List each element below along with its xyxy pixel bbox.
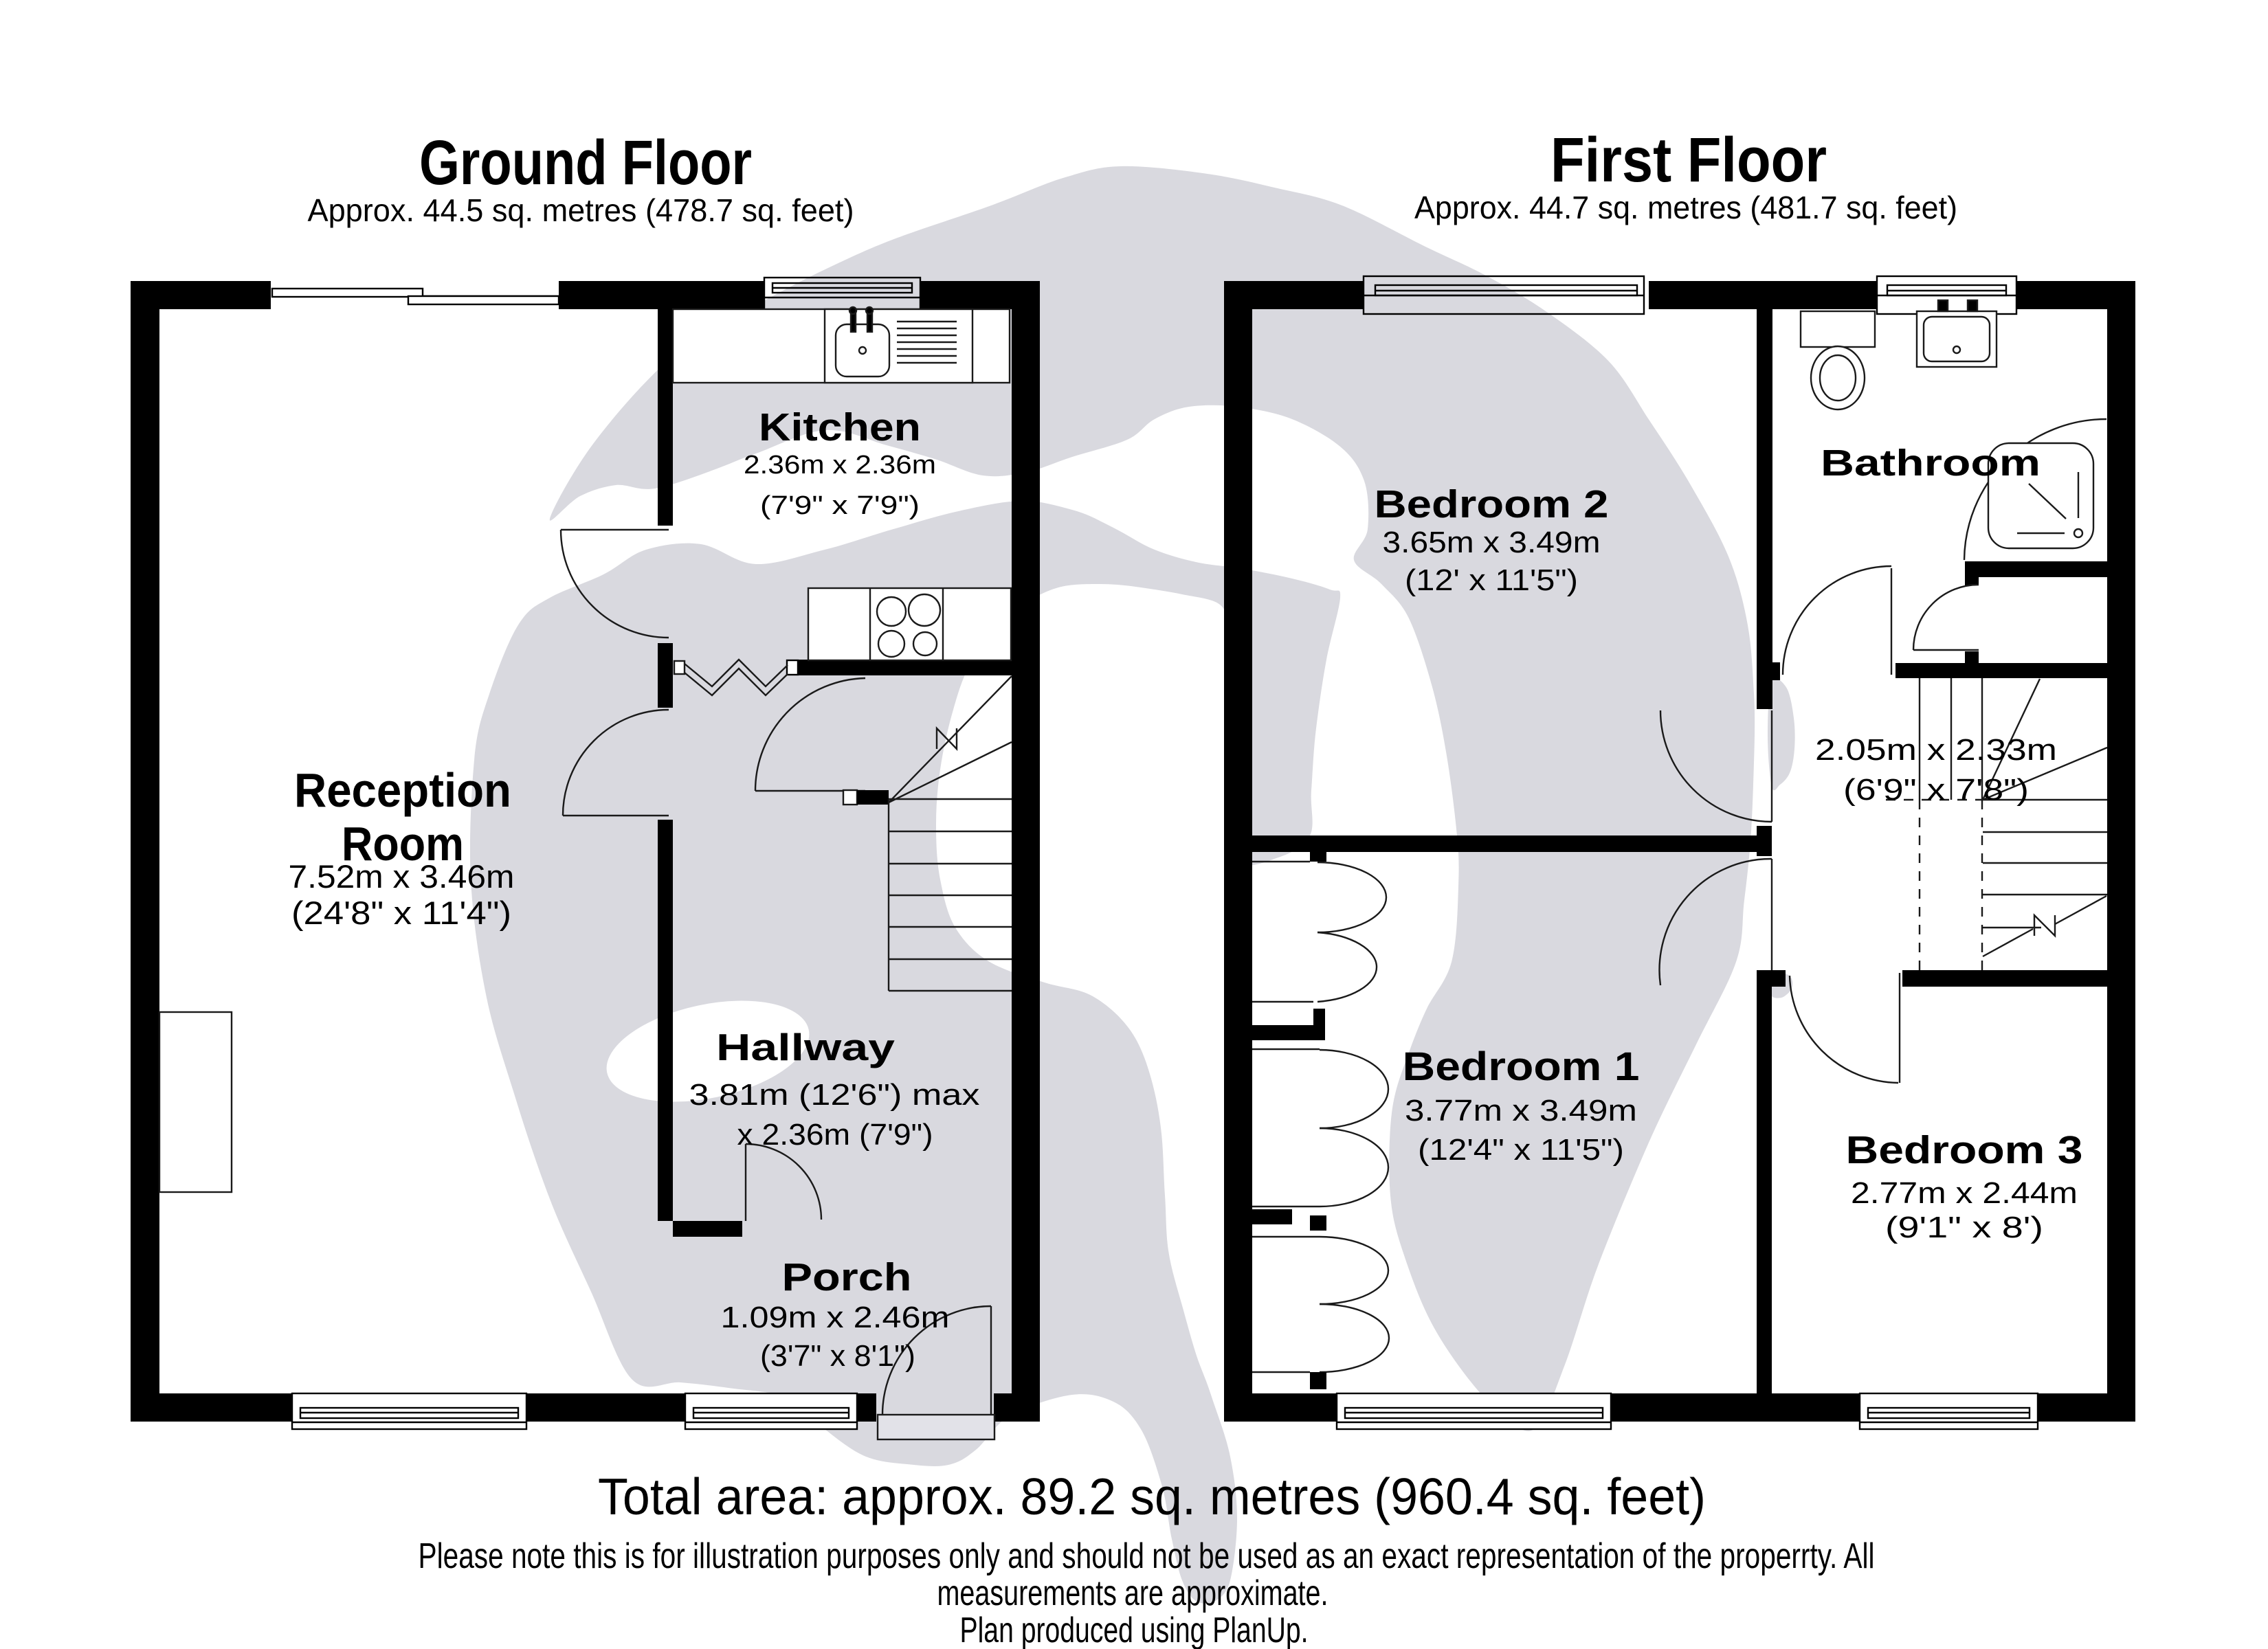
- svg-text:Please note this is for illust: Please note this is for illustration pur…: [419, 1536, 1875, 1576]
- svg-text:Kitchen: Kitchen: [759, 405, 921, 449]
- svg-text:3.65m x 3.49m: 3.65m x 3.49m: [1383, 526, 1601, 559]
- svg-text:(9'1" x 8'): (9'1" x 8'): [1885, 1211, 2043, 1244]
- svg-text:Bathroom: Bathroom: [1821, 442, 2041, 484]
- svg-text:Approx. 44.5 sq. metres (478.7: Approx. 44.5 sq. metres (478.7 sq. feet): [308, 192, 854, 228]
- svg-text:Total area: approx. 89.2 sq. m: Total area: approx. 89.2 sq. metres (960…: [598, 1468, 1706, 1525]
- svg-text:measurements are approximate.: measurements are approximate.: [937, 1573, 1328, 1613]
- svg-text:First Floor: First Floor: [1550, 125, 1827, 195]
- svg-text:Porch: Porch: [782, 1255, 912, 1299]
- svg-text:Reception: Reception: [294, 763, 511, 817]
- svg-text:x 2.36m (7'9"): x 2.36m (7'9"): [737, 1118, 933, 1152]
- svg-text:3.77m x 3.49m: 3.77m x 3.49m: [1405, 1094, 1637, 1128]
- svg-text:(6'9" x 7'8"): (6'9" x 7'8"): [1843, 773, 2029, 807]
- svg-text:(12'4" x 11'5"): (12'4" x 11'5"): [1418, 1133, 1624, 1167]
- svg-text:(7'9" x 7'9"): (7'9" x 7'9"): [760, 491, 920, 520]
- svg-text:(3'7" x 8'1"): (3'7" x 8'1"): [760, 1339, 915, 1373]
- svg-text:3.81m (12'6") max: 3.81m (12'6") max: [689, 1078, 980, 1112]
- svg-text:1.09m x 2.46m: 1.09m x 2.46m: [721, 1301, 950, 1334]
- svg-text:2.36m x 2.36m: 2.36m x 2.36m: [744, 451, 936, 480]
- svg-text:Bedroom 3: Bedroom 3: [1846, 1128, 2083, 1172]
- svg-text:Bedroom 1: Bedroom 1: [1403, 1044, 1640, 1089]
- svg-text:2.05m x 2.33m: 2.05m x 2.33m: [1815, 733, 2057, 767]
- svg-text:(12' x 11'5"): (12' x 11'5"): [1405, 563, 1578, 597]
- svg-text:Hallway: Hallway: [716, 1026, 896, 1068]
- svg-text:Approx. 44.7 sq. metres (481.7: Approx. 44.7 sq. metres (481.7 sq. feet): [1414, 190, 1957, 225]
- svg-text:Ground Floor: Ground Floor: [419, 128, 752, 198]
- svg-text:Plan produced using PlanUp.: Plan produced using PlanUp.: [960, 1611, 1309, 1649]
- svg-text:(24'8" x 11'4"): (24'8" x 11'4"): [291, 895, 511, 931]
- svg-text:2.77m x 2.44m: 2.77m x 2.44m: [1851, 1176, 2078, 1210]
- svg-text:Bedroom 2: Bedroom 2: [1375, 482, 1609, 526]
- svg-text:7.52m x 3.46m: 7.52m x 3.46m: [289, 858, 515, 895]
